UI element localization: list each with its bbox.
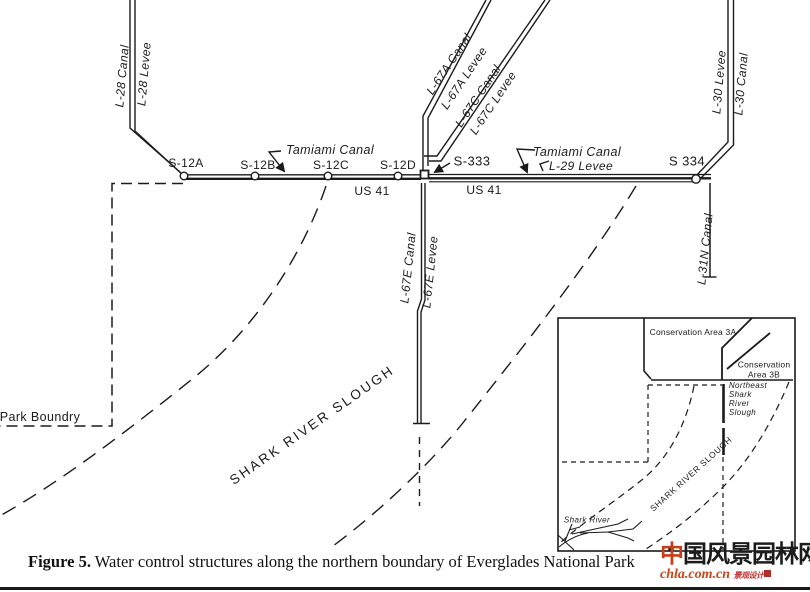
label-l29-levee: L-29 Levee [549,159,613,173]
structure-s333-marker[interactable] [421,171,429,179]
label-s12a: S-12A [168,156,203,170]
label-tamiami-canal-east: Tamiami Canal [533,145,621,159]
figure-caption-label: Figure 5. [28,552,91,571]
structure-s12a-marker[interactable] [180,172,188,180]
watermark-site-name: 中国风景园林网 [660,543,810,567]
figure-page: L-28 Canal L-28 Levee L-67A Canal L-67A … [0,0,810,592]
structure-s334-marker[interactable] [692,175,700,183]
inset-label-area3a: Conservation Area 3A [650,327,737,337]
label-s12b: S-12B [240,158,275,172]
label-us41-east: US 41 [466,183,501,197]
s333-arrow [435,163,450,172]
l29-levee-arrow [540,161,549,171]
label-s12c: S-12C [313,158,349,172]
slough-west-curve [0,186,326,518]
watermark: 中国风景园林网 chla.com.cn 景观设计 [660,543,810,582]
inset-label-ne-slough: Northeast Shark River Slough [729,382,767,418]
watermark-first-char: 中 [660,542,683,568]
label-us41-west: US 41 [354,184,389,198]
structure-s12c-marker[interactable] [324,172,332,180]
figure-caption-text: Water control structures along the north… [95,552,635,571]
label-tamiami-canal-west: Tamiami Canal [286,143,374,157]
inset-label-area3b: Conservation Area 3B [738,360,790,379]
label-s333: S-333 [454,154,491,169]
structure-s12d-marker[interactable] [394,172,402,180]
label-s12d: S-12D [380,158,416,172]
us41-road-line [184,178,711,179]
bottom-rule [0,587,810,590]
inset-label-shark-river: Shark River [564,516,610,525]
watermark-seal-icon [764,570,771,577]
park-boundary-dashed [0,184,183,427]
label-s334: S 334 [669,154,705,169]
watermark-rest-chars: 国风景园林网 [683,542,810,568]
watermark-url[interactable]: chla.com.cn 景观设计 [660,568,810,582]
watermark-url-text[interactable]: chla.com.cn [660,567,730,582]
structure-s12b-marker[interactable] [251,172,259,180]
label-park-boundary: Park Boundry [0,410,80,424]
watermark-tagline: 景观设计 [734,571,764,580]
